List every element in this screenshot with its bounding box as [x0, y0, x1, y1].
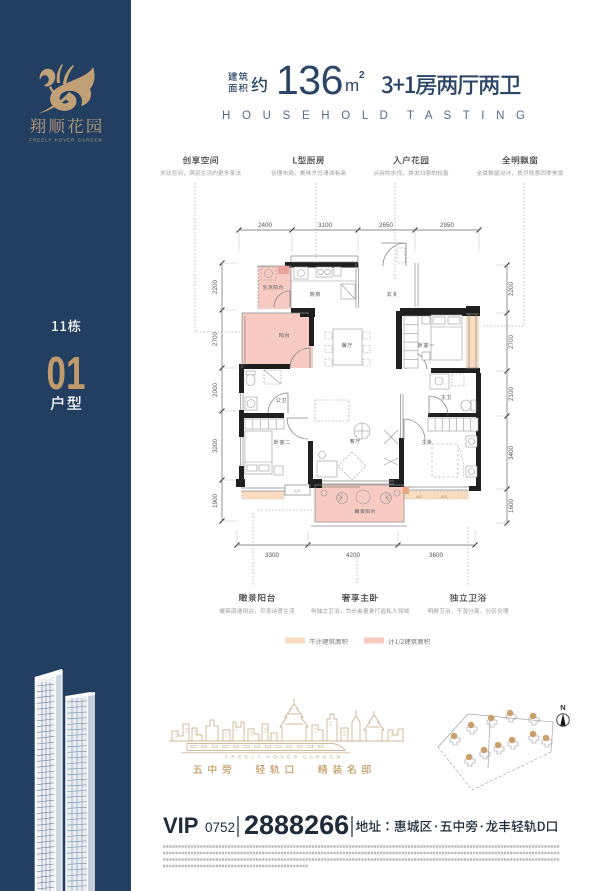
svg-text:2400: 2400 [258, 222, 273, 229]
svg-text:2888266: 2888266 [244, 810, 349, 840]
svg-text:3100: 3100 [318, 222, 333, 229]
svg-text:A/C: A/C [416, 494, 423, 499]
svg-text:3400: 3400 [508, 446, 515, 461]
svg-text:2000: 2000 [212, 383, 219, 398]
svg-text:2200: 2200 [212, 280, 219, 295]
svg-text:0752: 0752 [205, 820, 235, 835]
svg-text:01: 01 [47, 347, 86, 399]
svg-text:FREELY HOVER GARDEN: FREELY HOVER GARDEN [29, 138, 102, 143]
svg-text:2950: 2950 [440, 222, 455, 229]
svg-text:2200: 2200 [508, 282, 515, 297]
svg-text:2700: 2700 [212, 332, 219, 347]
svg-text:F R E E L Y H O V E R G A R: F R E E L Y H O V E R G A R D E N [225, 755, 340, 760]
svg-text:2700: 2700 [508, 335, 515, 350]
svg-text:4200: 4200 [346, 552, 361, 559]
svg-text:N: N [560, 703, 565, 712]
svg-text:2650: 2650 [379, 222, 394, 229]
svg-text:3200: 3200 [212, 439, 219, 454]
svg-text:VIP: VIP [163, 813, 198, 838]
svg-text:2: 2 [359, 70, 365, 81]
svg-text:m: m [345, 76, 359, 95]
svg-text:A/C: A/C [441, 494, 448, 499]
svg-text:3300: 3300 [265, 552, 280, 559]
svg-text:3600: 3600 [429, 552, 444, 559]
svg-text:136: 136 [276, 57, 343, 103]
svg-text:2100: 2100 [508, 387, 515, 402]
svg-text:1600: 1600 [508, 499, 515, 514]
svg-text:1900: 1900 [212, 494, 219, 509]
